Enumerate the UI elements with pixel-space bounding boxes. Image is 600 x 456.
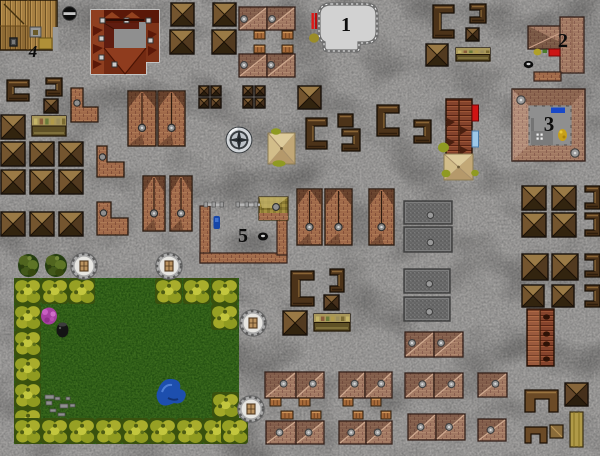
svg-text:1: 1 [341, 14, 351, 36]
svg-text:4: 4 [28, 42, 38, 61]
svg-text:5: 5 [238, 225, 248, 247]
svg-text:3: 3 [544, 112, 555, 136]
